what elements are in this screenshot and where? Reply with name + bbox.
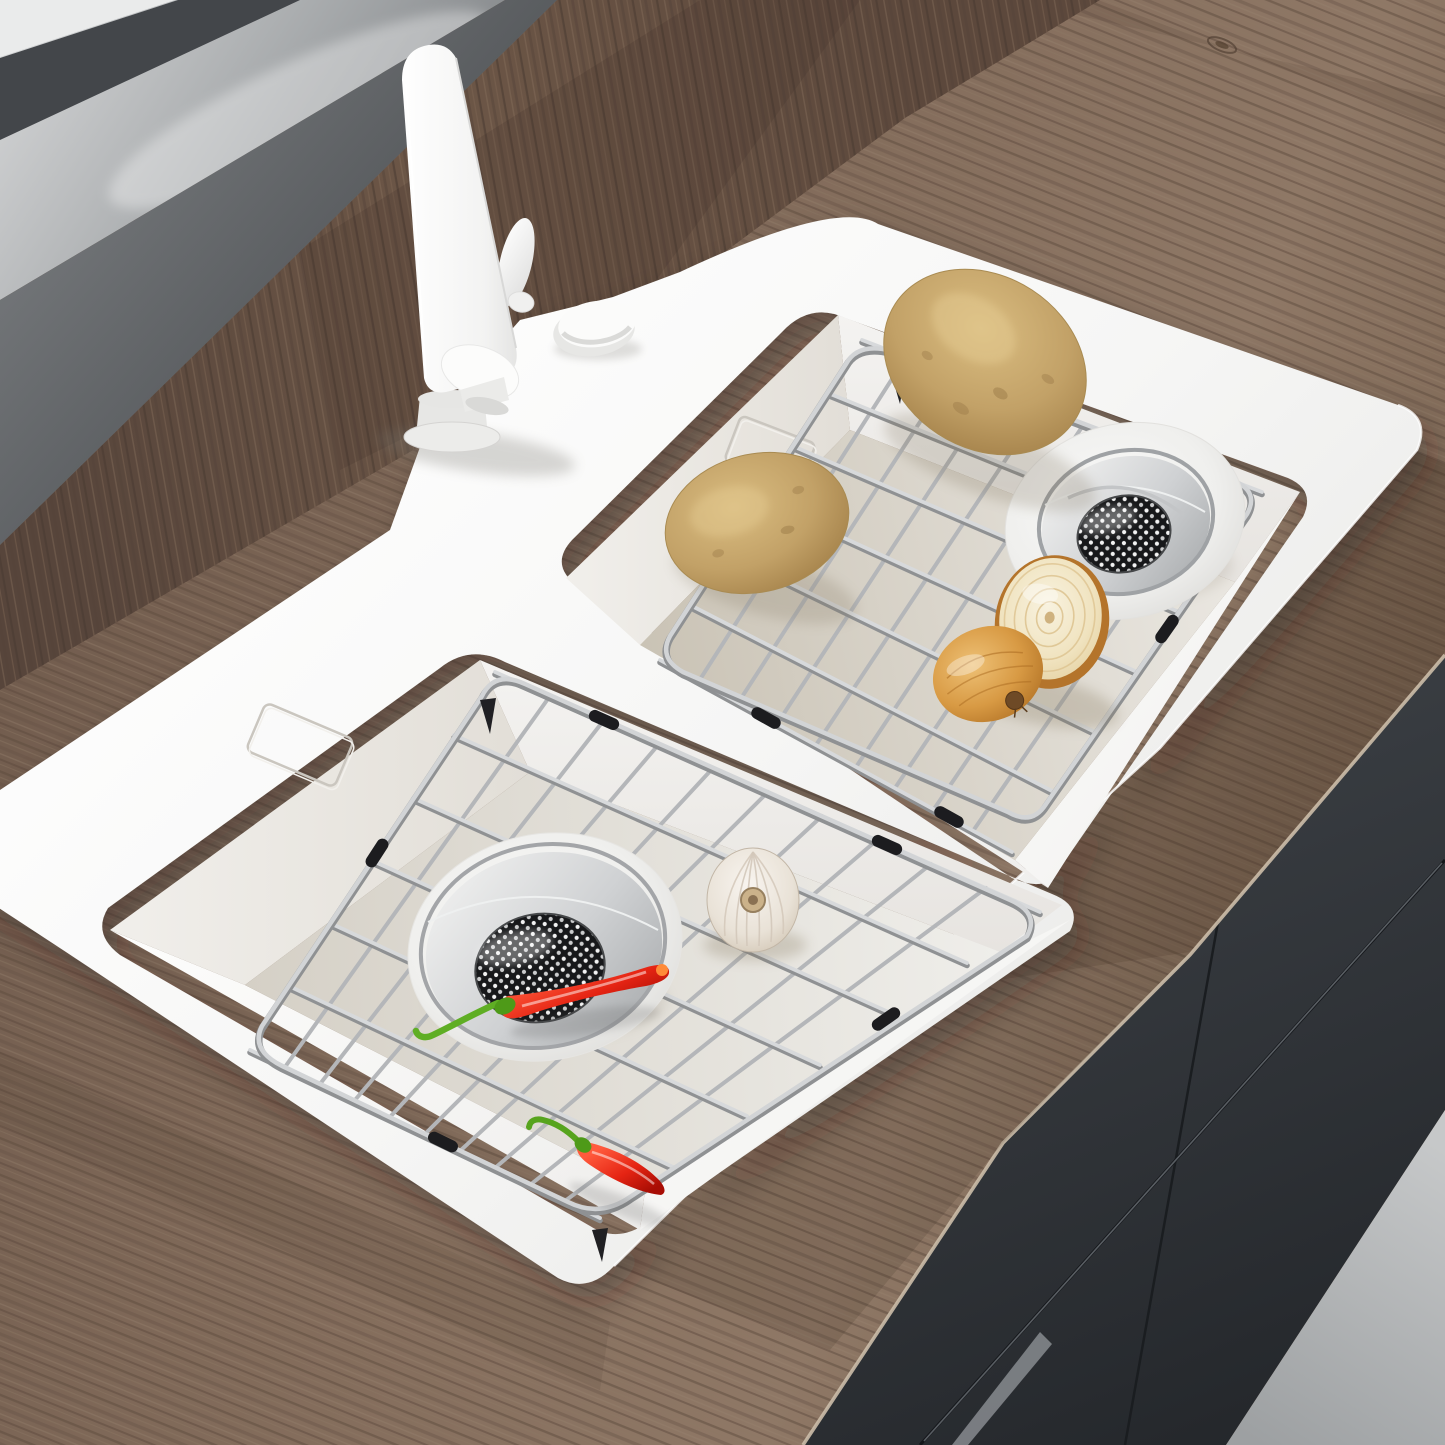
chili-tip bbox=[656, 964, 668, 976]
garlic-bulb bbox=[707, 848, 799, 952]
kitchen-sink-product-photo: White double-bowl drop-in kitchen sink w… bbox=[0, 0, 1445, 1445]
